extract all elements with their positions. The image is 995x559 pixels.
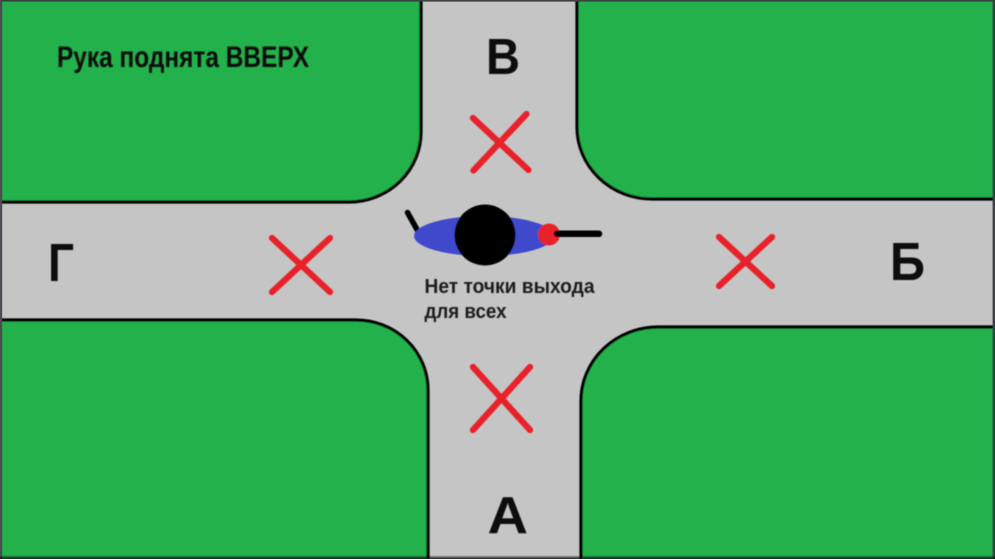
svg-text:Рука поднята ВВЕРХ: Рука поднята ВВЕРХ	[57, 41, 309, 74]
svg-text:для всех: для всех	[425, 300, 508, 323]
svg-text:Нет точки выхода: Нет точки выхода	[425, 275, 596, 298]
svg-text:В: В	[486, 28, 520, 85]
svg-text:А: А	[488, 487, 529, 545]
svg-text:Б: Б	[890, 232, 925, 292]
svg-text:Г: Г	[48, 233, 74, 293]
